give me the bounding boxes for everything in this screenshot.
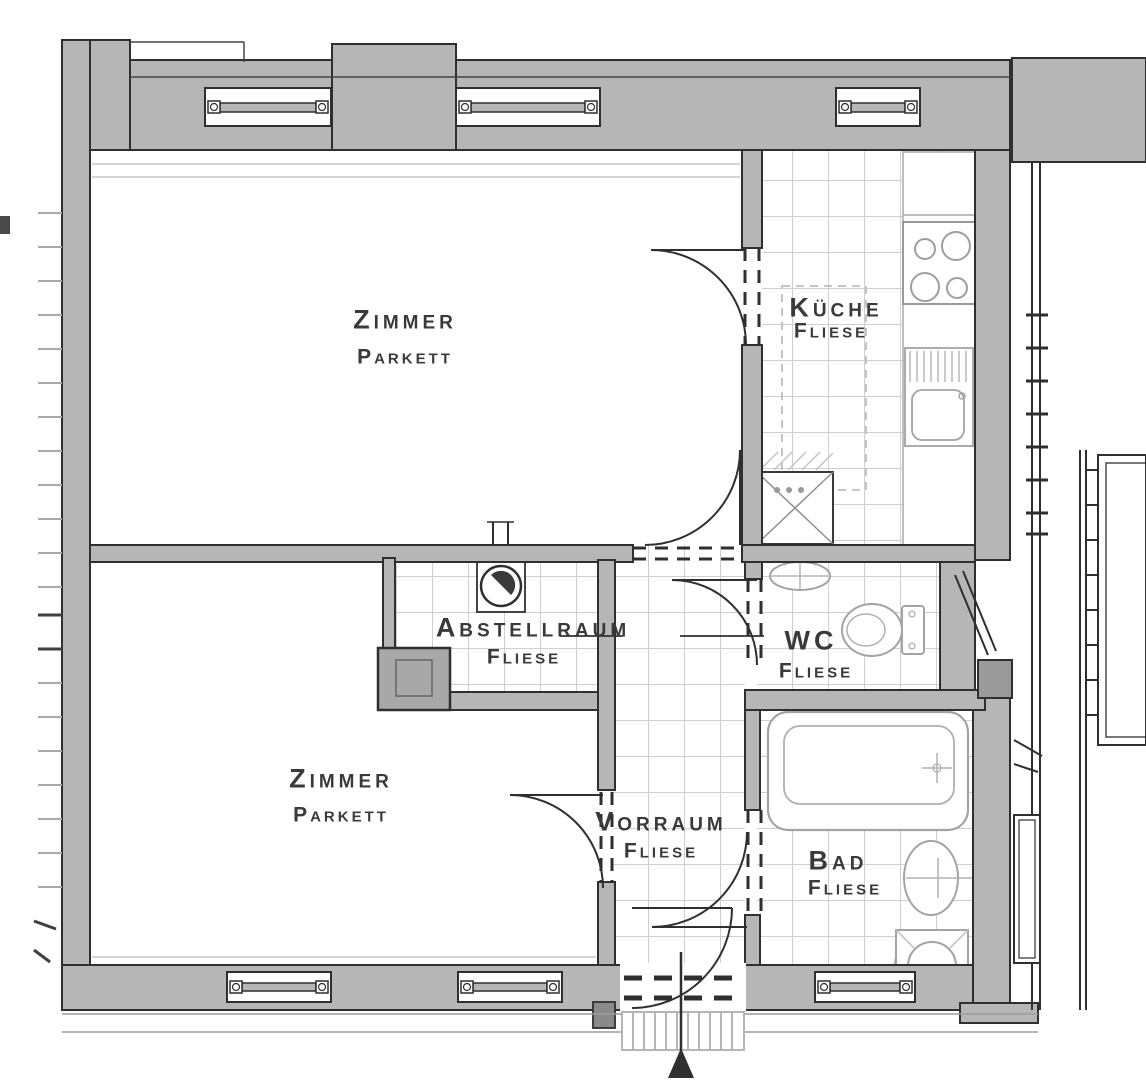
window-bottom-2 bbox=[458, 972, 562, 1002]
doormat-icon bbox=[622, 1012, 744, 1050]
wall-block-east bbox=[978, 660, 1012, 698]
neighbor-window-frame bbox=[1098, 455, 1146, 745]
entrance-opening bbox=[620, 963, 746, 1012]
bathtub-icon bbox=[768, 712, 968, 830]
room-label-vorraum: Vorraum bbox=[595, 809, 727, 836]
wall-kueche-south bbox=[742, 545, 975, 562]
wall-top-right-block bbox=[1012, 58, 1146, 162]
window-top-kitchen bbox=[836, 88, 920, 126]
wall-bottom-right-band bbox=[960, 1003, 1038, 1023]
room-label-wc: WC bbox=[785, 628, 838, 655]
wall-east-lower bbox=[973, 698, 1010, 1010]
window-bottom-1 bbox=[227, 972, 331, 1002]
floor-vorraum bbox=[613, 545, 745, 965]
wall-top-pillar bbox=[332, 44, 456, 150]
toilet-icon bbox=[842, 604, 924, 656]
wall-vorraum-west-upper bbox=[598, 560, 615, 790]
wall-east-upper bbox=[975, 150, 1010, 560]
room-label-kueche: Küche bbox=[789, 295, 882, 322]
wall-abstellraum-south bbox=[445, 692, 613, 710]
room-label-zimmer-bottom: Zimmer bbox=[289, 766, 393, 793]
room-label-abstellraum: Abstellraum bbox=[436, 615, 630, 642]
floorplan: Zimmer Parkett Küche Fliese Abstellraum … bbox=[0, 0, 1146, 1080]
floor-label-zimmer-bottom: Parkett bbox=[293, 805, 389, 826]
wall-kueche-west-lower bbox=[742, 345, 762, 545]
wc-sink-icon bbox=[770, 562, 830, 590]
window-top-1 bbox=[205, 88, 331, 126]
floor-label-kueche: Fliese bbox=[794, 321, 868, 342]
stove-icon bbox=[903, 222, 975, 304]
wall-bad-north bbox=[745, 690, 985, 710]
kitchen-sink-icon bbox=[905, 348, 973, 446]
window-bottom-bad bbox=[815, 972, 915, 1002]
floorplan-drawing bbox=[0, 0, 1146, 1080]
wall-pier-entrance bbox=[593, 1002, 615, 1028]
wall-mid-horizontal bbox=[90, 545, 633, 562]
floor-label-abstellraum: Fliese bbox=[487, 647, 561, 668]
floor-label-bad: Fliese bbox=[808, 878, 882, 899]
wall-vorraum-east-stub bbox=[745, 562, 762, 579]
floor-label-wc: Fliese bbox=[779, 661, 853, 682]
neighbor-door-frame bbox=[1014, 815, 1040, 963]
window-top-2 bbox=[456, 88, 600, 126]
wall-wc-east bbox=[940, 545, 975, 700]
wall-vorraum-west-lower bbox=[598, 882, 615, 965]
wall-bad-west-upper bbox=[745, 710, 760, 810]
chimney-icon bbox=[378, 648, 450, 710]
floor-label-zimmer-top: Parkett bbox=[357, 347, 453, 368]
floor-label-vorraum: Fliese bbox=[624, 841, 698, 862]
wall-left bbox=[62, 40, 90, 1010]
wall-abstellraum-west bbox=[383, 558, 395, 650]
wall-kueche-west-upper bbox=[742, 150, 762, 248]
wall-bad-west-lower bbox=[745, 915, 760, 965]
room-label-bad: Bad bbox=[809, 848, 868, 875]
room-label-zimmer-top: Zimmer bbox=[353, 307, 457, 334]
